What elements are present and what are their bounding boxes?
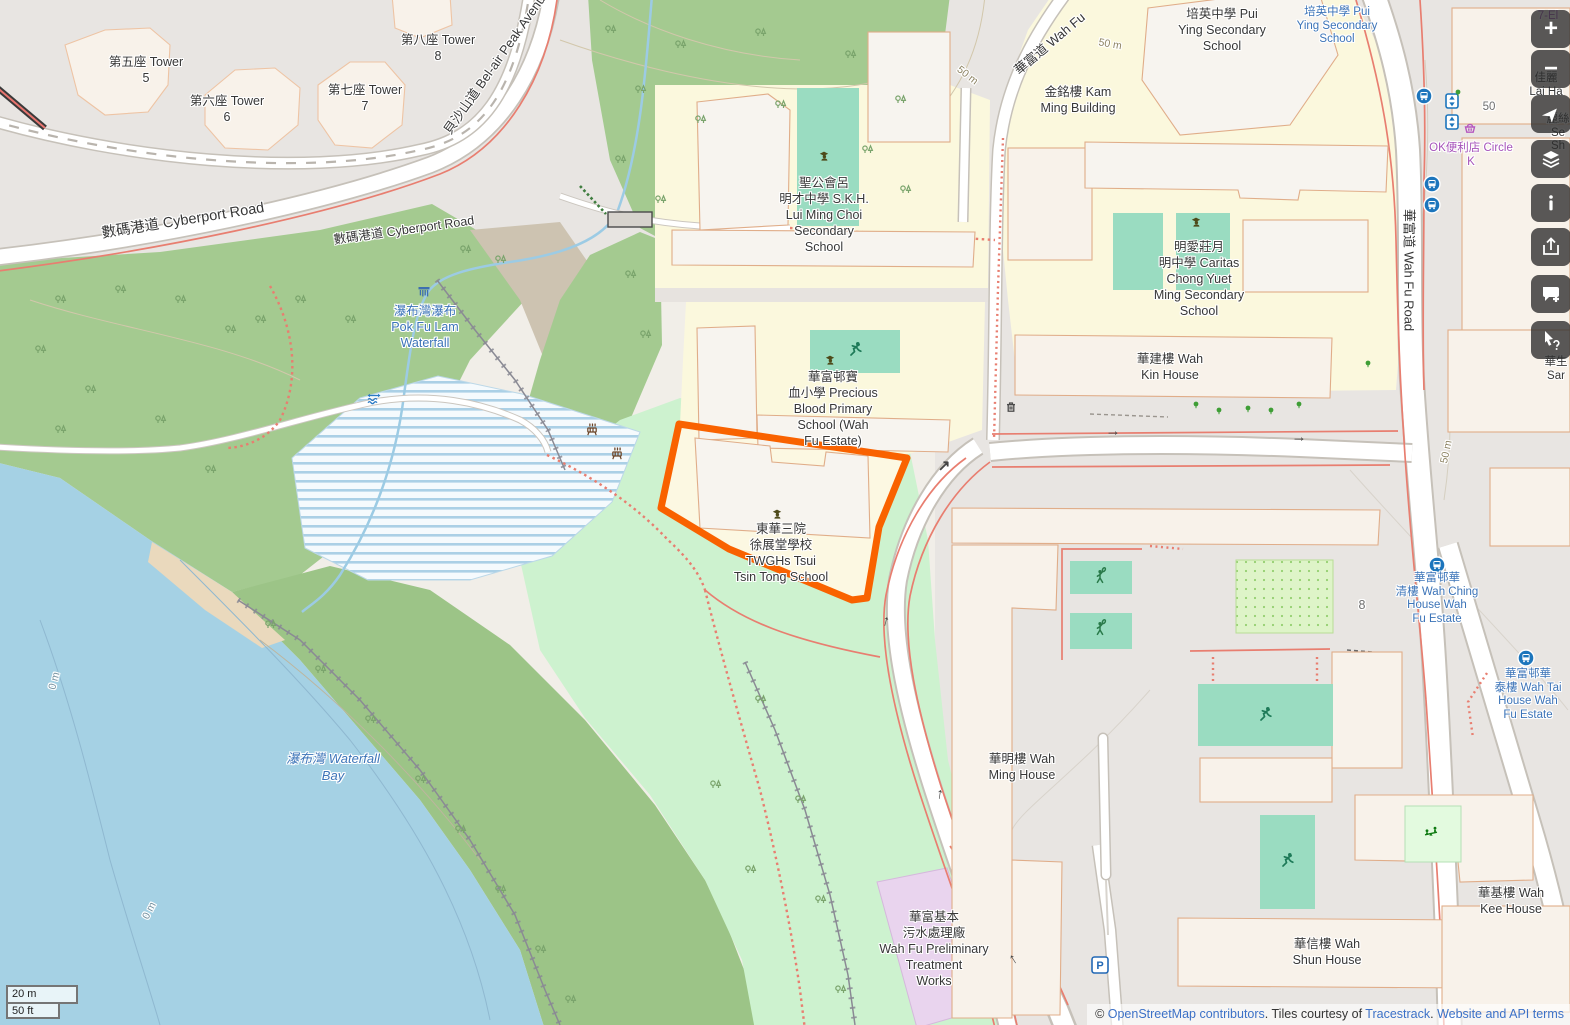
plus-icon: + (1544, 15, 1558, 43)
label-wah-kee-house: 華基樓 WahKee House (1478, 886, 1544, 918)
label-tower7: 第七座 Tower7 (328, 83, 402, 115)
map-canvas[interactable]: P 第五座 Tower5 第六座 Tower6 第七座 Tower7 第八座 T… (0, 0, 1570, 1025)
label-treatment-works: 華富基本污水處理廠Wah Fu PreliminaryTreatmentWork… (879, 910, 988, 989)
svg-text:P: P (1096, 960, 1103, 972)
query-cursor-icon (1540, 329, 1562, 351)
add-note-button[interactable] (1531, 275, 1570, 313)
bus-stop-icon (1424, 176, 1440, 192)
oneway-arrow-icon: → (1106, 424, 1121, 439)
query-features-button[interactable] (1531, 321, 1570, 359)
label-wah-fu-road-vertical: 華富道 Wah Fu Road (1400, 209, 1417, 331)
label-tower5: 第五座 Tower5 (109, 55, 183, 87)
elevator-icon (1446, 94, 1458, 108)
map-tiles: P (0, 0, 1570, 1025)
zoom-out-button[interactable]: − (1531, 50, 1570, 88)
label-tower8: 第八座 Tower8 (401, 33, 475, 65)
bridge (608, 212, 652, 227)
label-circle-k: OK便利店 CircleK (1429, 142, 1513, 169)
label-precious-blood-school: 華富邨寶血小學 PreciousBlood PrimarySchool (Wah… (788, 370, 878, 449)
share-button[interactable] (1531, 228, 1570, 266)
label-wah-tai-house-stop: 華富邨華泰樓 Wah TaiHouse WahFu Estate (1494, 668, 1561, 722)
zoom-in-button[interactable]: + (1531, 10, 1570, 48)
label-wah-ming-house: 華明樓 WahMing House (989, 752, 1056, 784)
label-pui-ying-school: 培英中學 PuiYing SecondarySchool (1178, 7, 1266, 55)
layers-icon (1540, 148, 1562, 170)
label-caritas-school: 明愛莊月明中學 CaritasChong YuetMing SecondaryS… (1154, 240, 1244, 319)
label-wah-sang-partial: 華生Sar (1545, 356, 1568, 383)
label-pui-ying-bus-stop: 培英中學 PuiYing SecondarySchool (1297, 6, 1378, 47)
osm-contributors-link[interactable]: OpenStreetMap contributors (1108, 1007, 1265, 1021)
label-waterfall-bay: 瀑布灣 WaterfallBay (286, 751, 380, 784)
label-skh-lui-ming-choi: 聖公會呂明才中學 S.K.H.Lui Ming ChoiSecondarySch… (779, 176, 869, 255)
note-bubble-icon (1540, 283, 1562, 305)
parking-icon: P (1092, 957, 1108, 973)
scale-bar: 20 m 50 ft (6, 985, 78, 1019)
locate-arrow-icon (1541, 104, 1561, 124)
share-icon (1540, 236, 1562, 258)
tiles-text: . Tiles courtesy of (1265, 1007, 1366, 1021)
label-number-8: 8 (1359, 598, 1366, 614)
oneway-arrow-icon: ↗ (938, 459, 951, 474)
bus-stop-icon (1518, 650, 1534, 666)
terms-link[interactable]: Website and API terms (1437, 1007, 1564, 1021)
locate-button[interactable] (1531, 95, 1570, 133)
map-key-button[interactable] (1531, 184, 1570, 222)
scale-imperial: 50 ft (6, 1002, 60, 1019)
tracestrack-link[interactable]: Tracestrack (1365, 1007, 1430, 1021)
label-number-50: 50 (1483, 101, 1496, 115)
oneway-arrow-icon: → (1292, 430, 1307, 445)
label-wah-kin-house: 華建樓 WahKin House (1137, 352, 1203, 384)
bus-stop-icon (1429, 557, 1445, 573)
elevator-icon (1446, 115, 1458, 129)
label-wah-ching-house-stop: 華富邨華清樓 Wah ChingHouse WahFu Estate (1396, 572, 1479, 626)
copyright-text: © (1095, 1007, 1108, 1021)
info-icon (1541, 193, 1561, 213)
label-wah-shun-house: 華信樓 WahShun House (1293, 937, 1362, 969)
label-kam-ming-building: 金銘樓 KamMing Building (1040, 85, 1115, 117)
label-pok-fu-lam-waterfall: 瀑布灣瀑布Pok Fu LamWaterfall (391, 304, 458, 352)
bus-stop-icon (1416, 88, 1432, 104)
bus-stop-icon (1424, 197, 1440, 213)
attribution: © OpenStreetMap contributors. Tiles cour… (1087, 1004, 1570, 1025)
label-tower6: 第六座 Tower6 (190, 94, 264, 126)
layers-button[interactable] (1531, 140, 1570, 178)
label-twghs-tsui-tsin-tong: 東華三院徐展堂學校TWGHs TsuiTsin Tong School (734, 522, 828, 586)
minus-icon: − (1544, 55, 1558, 83)
